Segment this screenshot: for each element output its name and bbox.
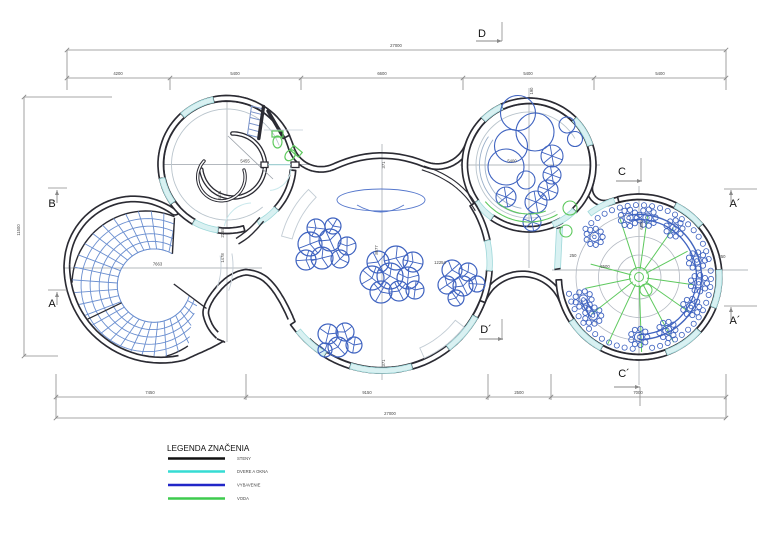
- svg-text:190: 190: [529, 87, 534, 95]
- svg-text:5411: 5411: [217, 190, 222, 200]
- svg-text:6500: 6500: [639, 220, 644, 230]
- svg-text:5455: 5455: [240, 159, 250, 164]
- svg-text:6500: 6500: [600, 264, 610, 269]
- svg-text:5400: 5400: [655, 71, 665, 76]
- svg-text:STENY: STENY: [237, 456, 251, 461]
- svg-text:7000: 7000: [633, 390, 643, 395]
- svg-text:B: B: [48, 198, 55, 210]
- svg-text:8677: 8677: [374, 245, 379, 255]
- svg-text:371: 371: [381, 161, 386, 169]
- svg-text:2500: 2500: [514, 390, 524, 395]
- svg-text:250: 250: [719, 254, 727, 259]
- svg-text:4200: 4200: [113, 71, 123, 76]
- svg-text:DVERE A OKNA: DVERE A OKNA: [237, 469, 268, 474]
- svg-text:D: D: [478, 28, 486, 40]
- svg-text:VYBAVENIE: VYBAVENIE: [237, 483, 261, 488]
- svg-text:371: 371: [381, 359, 386, 367]
- svg-text:7663: 7663: [153, 262, 163, 267]
- svg-text:27000: 27000: [384, 411, 396, 416]
- svg-text:27000: 27000: [390, 43, 402, 48]
- svg-text:7450: 7450: [145, 390, 155, 395]
- svg-text:C: C: [618, 166, 626, 178]
- svg-text:VODA: VODA: [237, 496, 249, 501]
- svg-text:12254: 12254: [434, 260, 446, 265]
- svg-text:5400: 5400: [523, 71, 533, 76]
- svg-text:6600: 6600: [377, 71, 387, 76]
- svg-text:LEGENDA ZNAČENIA: LEGENDA ZNAČENIA: [167, 443, 250, 453]
- svg-text:5400: 5400: [230, 71, 240, 76]
- svg-text:1478: 1478: [220, 253, 225, 263]
- svg-text:11500: 11500: [16, 224, 21, 236]
- svg-text:9150: 9150: [362, 390, 372, 395]
- svg-text:A: A: [48, 298, 56, 310]
- svg-text:D´: D´: [480, 324, 492, 336]
- svg-text:5400: 5400: [507, 159, 517, 164]
- svg-text:2255: 2255: [220, 228, 225, 238]
- svg-text:250: 250: [570, 253, 578, 258]
- svg-text:C´: C´: [618, 368, 630, 380]
